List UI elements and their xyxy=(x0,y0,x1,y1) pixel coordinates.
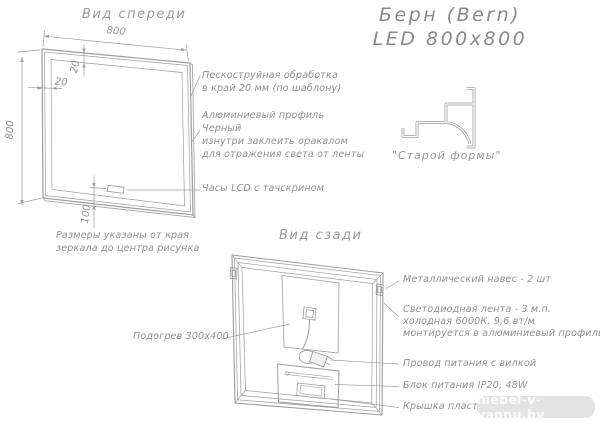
front-view-mirror-drawing xyxy=(18,31,201,229)
product-title: Берн (Bern) LED 800x800 xyxy=(340,4,560,52)
annotation-clock: Часы LCD с тачскрином xyxy=(202,184,324,194)
dimension-note-line1: Размеры указаны от края xyxy=(56,231,189,241)
rear-view-label: Вид сзади xyxy=(279,229,362,242)
annotation-psu: Блок питания IP20, 48W xyxy=(403,381,528,391)
product-title-size: LED 800x800 xyxy=(340,28,560,52)
heating-panel-shape xyxy=(282,276,339,354)
power-supply-box-shape xyxy=(278,364,340,408)
product-title-name: Берн (Bern) xyxy=(340,4,560,28)
site-watermark: mebel-v-vannu.by xyxy=(477,396,595,418)
cord-and-plug-shapes xyxy=(298,307,332,367)
annotation-led-line1: Светодиодная лента - 3 м.п. xyxy=(403,305,551,315)
profile-caption: "Старой формы" xyxy=(392,150,501,161)
metal-hanger-shapes xyxy=(230,268,383,296)
dimension-note-line2: зеркала до центра рисунка xyxy=(56,244,200,254)
annotation-profile-line2: Черный xyxy=(202,124,241,134)
dim-width-800: 800 xyxy=(106,26,126,38)
annotation-cord: Провод питания с вилкой xyxy=(403,359,536,369)
technical-drawing-sheet: Вид спереди Берн (Bern) LED 800x800 800 … xyxy=(0,0,600,424)
dim-border-left-20: 20 xyxy=(54,77,68,88)
dim-height-800: 800 xyxy=(6,120,17,140)
rear-view-mirror-drawing xyxy=(221,255,399,415)
front-view-label: Вид спереди xyxy=(82,8,186,21)
aluminium-profile-drawing xyxy=(403,89,474,148)
annotation-hanger: Металлический навес - 2 шт xyxy=(403,275,551,285)
annotation-profile-line4: для отражения света от ленты xyxy=(202,150,364,160)
annotation-led-line2: холодная 6000К, 9,6 вт/м xyxy=(403,317,535,327)
annotation-led-line3: монтируется в алюминиевый профиль xyxy=(403,329,600,339)
annotation-sandblast-line1: Пескоструйная обработка xyxy=(202,71,338,81)
annotation-sandblast-line2: в край 20 мм (по шаблону) xyxy=(202,84,341,94)
annotation-heating: Подогрев 300x400 xyxy=(133,332,229,342)
annotation-profile-line3: изнутри заклеить оракалом xyxy=(202,137,348,147)
annotation-profile-line1: Алюминиевый профиль xyxy=(202,111,324,121)
lcd-clock-shape xyxy=(107,185,124,193)
